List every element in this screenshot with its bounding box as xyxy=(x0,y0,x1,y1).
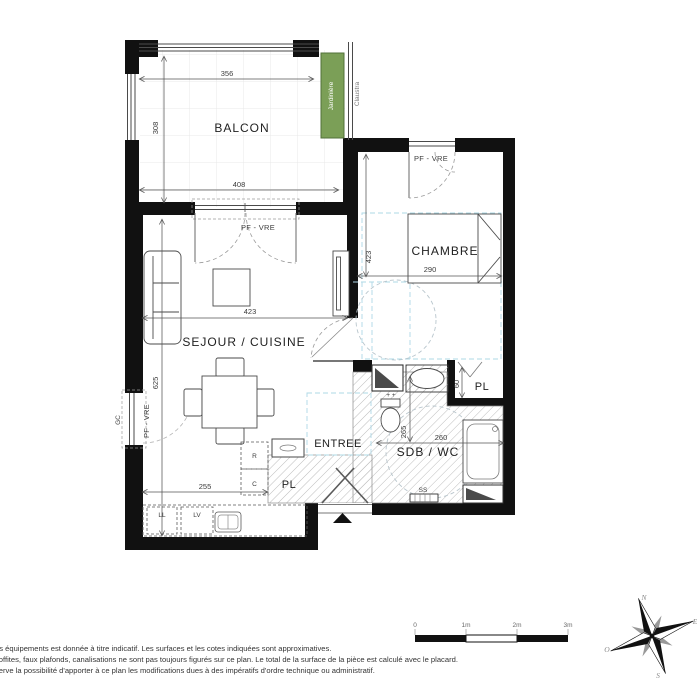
window-label: PF - VRE xyxy=(241,223,275,232)
room-label-chambre: CHAMBRE xyxy=(411,244,478,258)
room-label-pl-entree: PL xyxy=(282,479,296,491)
chair xyxy=(216,427,244,444)
appliance-label-ll: LL xyxy=(158,512,166,519)
compass-s: S xyxy=(656,671,660,680)
disclaimer-line-2: soffites, faux plafonds, canalisations n… xyxy=(0,655,465,666)
guardrail-label: GC xyxy=(115,415,122,425)
dining-table xyxy=(202,376,257,428)
disclaimer-line-3: serve la possibilité d'apporter à ce pla… xyxy=(0,666,465,677)
disclaimer-line-1: es équipements est donnée à titre indica… xyxy=(0,644,465,655)
dim-60: 60 xyxy=(452,380,461,388)
shower xyxy=(463,420,503,483)
kitchen-sink xyxy=(215,512,241,532)
claustra-label: Claustra xyxy=(354,82,361,107)
dim-260: 260 xyxy=(435,433,448,442)
tv-unit xyxy=(333,251,349,316)
dim-408: 408 xyxy=(233,180,246,189)
window-label: PF - VRE xyxy=(142,404,151,438)
scale-tick-1m: 1m xyxy=(461,622,470,629)
scale-bar: 0 1m 2m 3m xyxy=(413,622,572,642)
chair xyxy=(256,389,274,416)
dim-625: 625 xyxy=(151,377,160,390)
room-label-balcon: BALCON xyxy=(214,121,269,135)
appliance-label-lv: LV xyxy=(193,512,201,519)
compass-n: N xyxy=(640,593,647,602)
dim-290: 290 xyxy=(424,265,437,274)
compass-rose: N E S O xyxy=(597,583,697,682)
dim-255: 255 xyxy=(199,482,212,491)
dim-423-chambre: 423 xyxy=(364,251,373,264)
disclaimer-text: es équipements est donnée à titre indica… xyxy=(0,644,465,676)
dim-265: 265 xyxy=(399,426,408,439)
window-label: PF - VRE xyxy=(414,154,448,163)
floor-plan-page: BALCON CHAMBRE SEJOUR / CUISINE ENTREE S… xyxy=(0,0,697,682)
room-label-sejour: SEJOUR / CUISINE xyxy=(182,335,305,349)
compass-o: O xyxy=(604,645,610,654)
room-label-sdb: SDB / WC xyxy=(397,445,460,459)
dim-308: 308 xyxy=(151,122,160,135)
appliance-label-c: C xyxy=(252,481,257,488)
appliance-label-r: R xyxy=(252,453,257,460)
chair xyxy=(216,358,244,377)
chair xyxy=(184,389,202,416)
entry-closet xyxy=(272,439,304,457)
towel-rail-label: SS xyxy=(419,487,428,494)
dim-423-sejour: 423 xyxy=(244,307,257,316)
towel-radiator xyxy=(410,494,438,502)
jardiniere-label: Jardinière xyxy=(328,81,335,110)
compass-e: E xyxy=(692,617,697,626)
tap-marks: + + xyxy=(386,392,396,399)
scale-tick-2m: 2m xyxy=(512,622,521,629)
floor-plan-drawing: BALCON CHAMBRE SEJOUR / CUISINE ENTREE S… xyxy=(0,0,697,682)
room-label-pl-bain: PL xyxy=(475,381,489,393)
scale-tick-0: 0 xyxy=(413,622,417,629)
toilet xyxy=(381,399,400,407)
sofa xyxy=(144,251,181,344)
dim-356: 356 xyxy=(221,69,234,78)
scale-tick-3m: 3m xyxy=(563,622,572,629)
room-label-entree: ENTREE xyxy=(314,438,362,450)
coffee-table xyxy=(213,269,250,306)
